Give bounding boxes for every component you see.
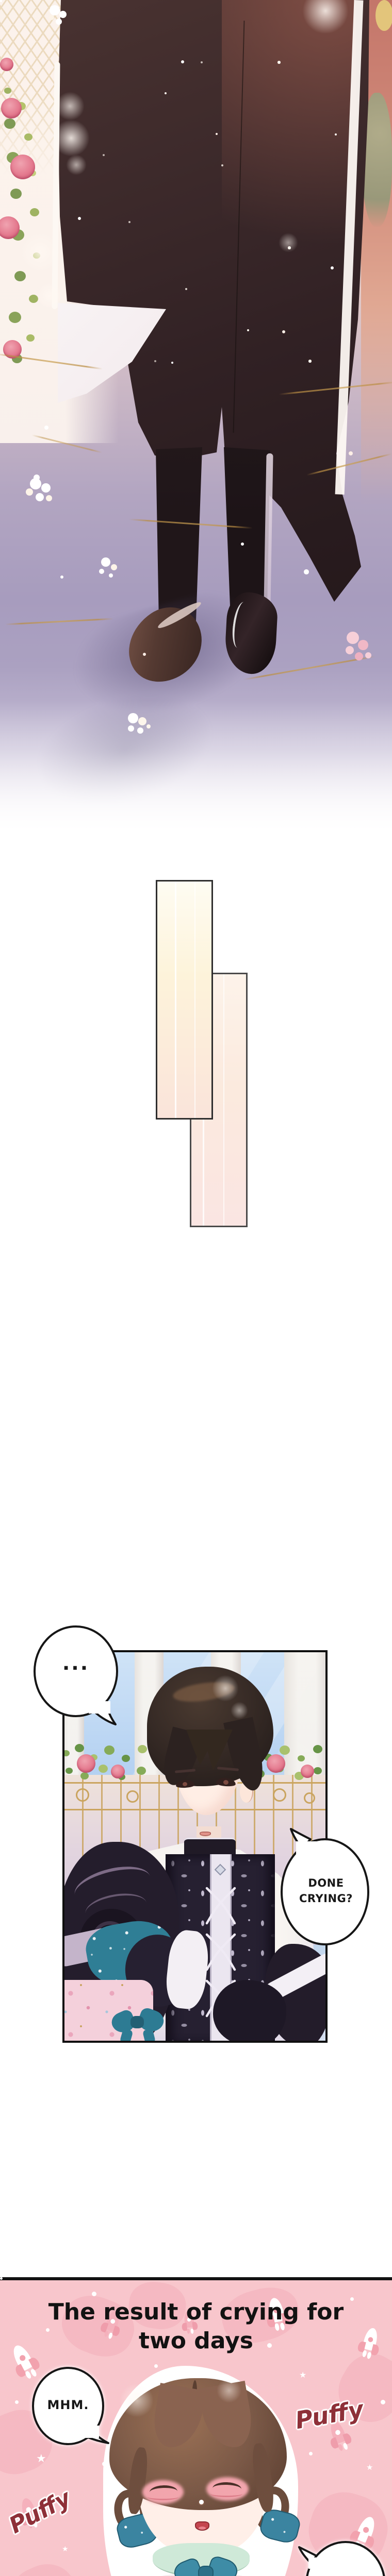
star-icon: ★ [366, 2463, 373, 2472]
girl-ribbon-bow [112, 2007, 164, 2043]
rose-flower [267, 1754, 285, 1773]
petal-dots [0, 0, 2, 2]
man-mouth [200, 1832, 211, 1836]
ellipsis-text: ... [31, 1652, 121, 1674]
caption-panel-pink: ★ ★ ★ ★ ★ ★ ★ ★ The result of crying for… [0, 2277, 392, 2576]
bokeh-light [21, 233, 60, 272]
webtoon-page: ... DONE CRYING? [0, 0, 392, 2576]
done-crying-text: DONE CRYING? [293, 1875, 359, 1907]
white-flower-cluster [101, 557, 110, 567]
star-icon: ★ [299, 2370, 306, 2380]
bokeh-on-hair [212, 1675, 239, 1702]
rose-flower [111, 1765, 125, 1778]
caption-title-line1: The result of crying for [41, 2299, 351, 2325]
bokeh-light [279, 233, 298, 252]
chibi-nose [199, 2500, 204, 2504]
chibi-bow [174, 2552, 241, 2576]
bokeh-light [36, 282, 63, 309]
bokeh-on-hair [231, 1702, 248, 1719]
white-flower-top [50, 5, 60, 15]
man-sash-dark [213, 1980, 286, 2043]
rose-flower [77, 1754, 95, 1773]
mhm-text: MHM. [31, 2398, 105, 2412]
rose-flower [301, 1765, 314, 1778]
sfx-puffy-left: Puffy [5, 2485, 75, 2539]
pink-flower-cluster [347, 632, 359, 644]
sfx-puffy-right: Puffy [293, 2395, 365, 2434]
transition-rect-front [156, 880, 213, 1120]
plant-blonde-accent [375, 0, 392, 31]
star-icon: ★ [62, 2545, 69, 2553]
bokeh-on-chibi-hair [120, 2383, 154, 2417]
caption-title-line2: two days [41, 2328, 351, 2354]
white-flower-cluster [30, 478, 41, 489]
pattern-dots [0, 2277, 3, 2280]
bokeh-on-chibi-hair [217, 2378, 241, 2403]
panel-border-top [0, 2277, 392, 2280]
chibi-mouth [195, 2521, 209, 2531]
star-icon: ★ [36, 2452, 46, 2465]
scene-panel-garden [0, 0, 392, 855]
